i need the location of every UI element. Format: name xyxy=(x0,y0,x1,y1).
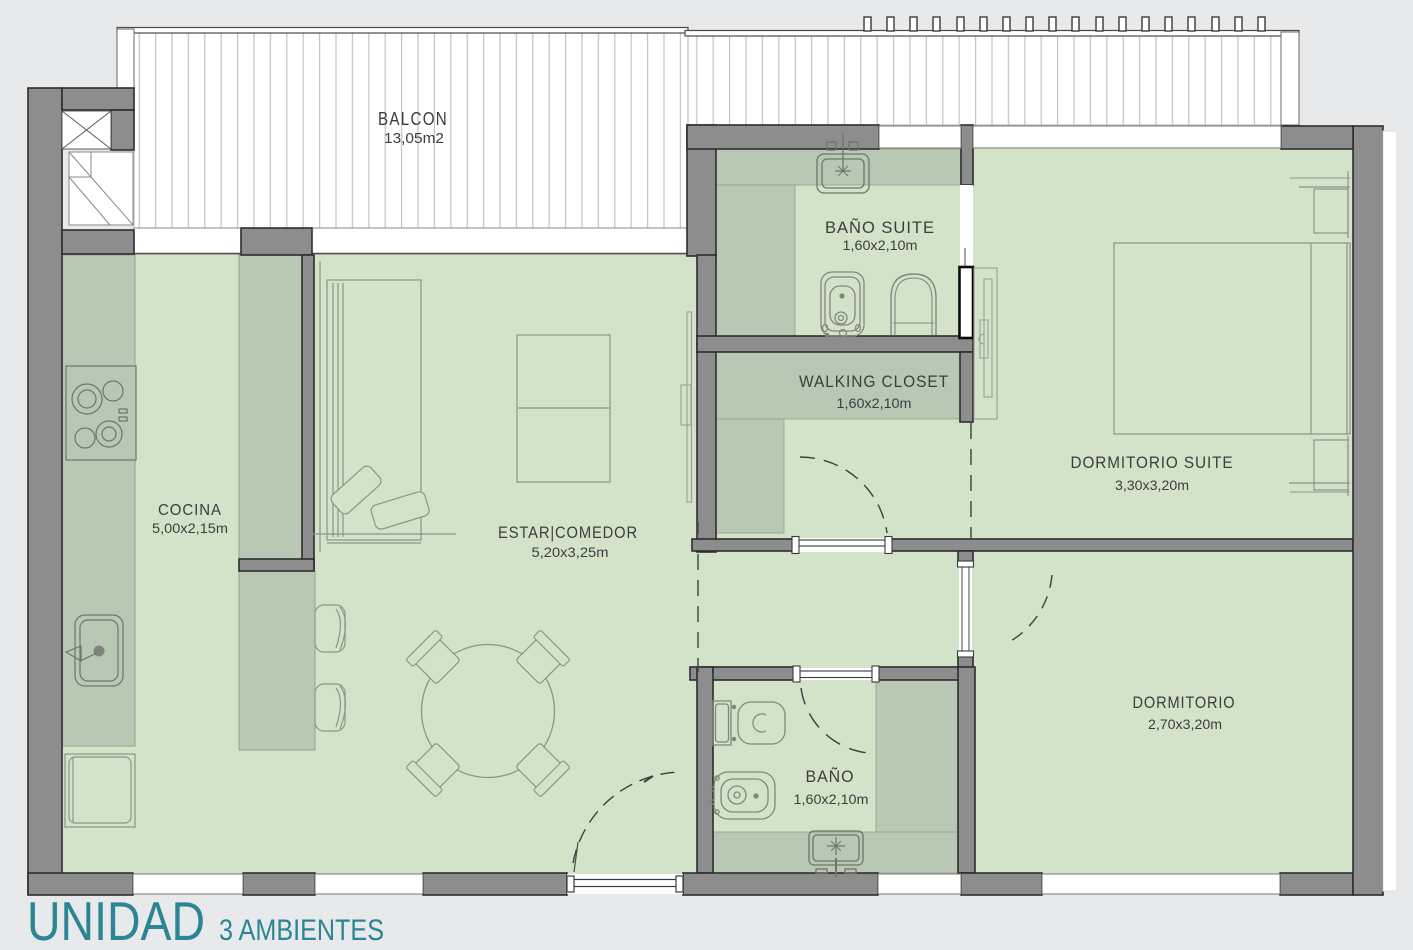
svg-text:13,05m2: 13,05m2 xyxy=(384,130,444,147)
svg-text:DORMITORIO SUITE: DORMITORIO SUITE xyxy=(1071,453,1234,472)
svg-text:1,60x2,10m: 1,60x2,10m xyxy=(843,238,918,253)
svg-text:1,60x2,10m: 1,60x2,10m xyxy=(837,396,912,411)
svg-text:UNIDAD: UNIDAD xyxy=(27,890,205,950)
svg-text:COCINA: COCINA xyxy=(158,502,222,519)
svg-text:5,20x3,25m: 5,20x3,25m xyxy=(532,545,609,560)
svg-text:ESTAR|COMEDOR: ESTAR|COMEDOR xyxy=(498,523,638,542)
svg-text:BAÑO: BAÑO xyxy=(806,767,855,786)
svg-text:BALCON: BALCON xyxy=(378,109,448,129)
svg-text:1,60x2,10m: 1,60x2,10m xyxy=(794,792,869,807)
svg-text:3 AMBIENTES: 3 AMBIENTES xyxy=(219,914,384,947)
svg-text:WALKING CLOSET: WALKING CLOSET xyxy=(799,372,949,391)
svg-text:DORMITORIO: DORMITORIO xyxy=(1133,693,1236,712)
svg-text:5,00x2,15m: 5,00x2,15m xyxy=(152,521,228,536)
svg-text:2,70x3,20m: 2,70x3,20m xyxy=(1148,717,1222,732)
svg-text:3,30x3,20m: 3,30x3,20m xyxy=(1115,478,1189,493)
svg-text:BAÑO SUITE: BAÑO SUITE xyxy=(825,218,935,237)
